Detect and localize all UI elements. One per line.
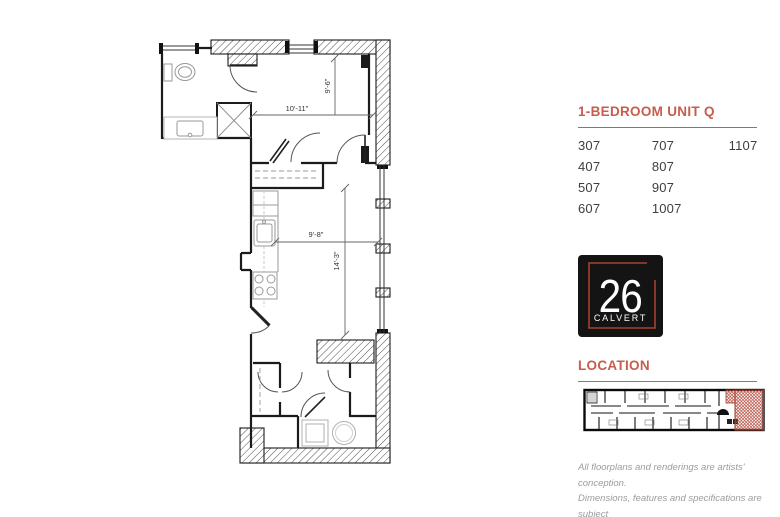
dim-bedroom-depth: 9'-6" xyxy=(323,78,332,93)
disclaimer: All floorplans and renderings are artist… xyxy=(578,460,773,517)
disclaimer-line: Dimensions, features and specifications … xyxy=(578,491,773,517)
washer xyxy=(302,420,328,446)
unit-highlight-notch xyxy=(726,390,735,403)
unit-number: 1007 xyxy=(652,198,725,219)
unit-number: 507 xyxy=(578,177,648,198)
floorplan-drawing: 10'-11" 9'-6" 9'-8" 14'-3" xyxy=(140,20,450,500)
flyer-page: 10'-11" 9'-6" 9'-8" 14'-3" 1-BEDROOM UNI… xyxy=(0,0,780,517)
location-map xyxy=(583,387,765,433)
kitchen-sink xyxy=(254,220,275,246)
dim-bedroom-width: 10'-11" xyxy=(286,104,309,113)
dim-living-depth: 14'-3" xyxy=(332,251,341,270)
disclaimer-line: All floorplans and renderings are artist… xyxy=(578,460,773,491)
logo-name: CALVERT xyxy=(594,313,647,323)
unit-row: 307 707 1107 xyxy=(578,135,757,156)
fixtures xyxy=(164,64,356,447)
dryer xyxy=(333,422,356,445)
unit-number-list: 307 707 1107 407 807 507 907 607 1007 xyxy=(578,135,757,219)
stove xyxy=(253,272,277,299)
building-washer-dryer xyxy=(727,419,732,424)
dim-living-width: 9'-8" xyxy=(309,230,324,239)
linen-closet-x xyxy=(217,103,251,138)
unit-number: 1107 xyxy=(729,135,758,156)
brand-logo: 26 CALVERT xyxy=(578,255,663,337)
unit-number: 907 xyxy=(652,177,725,198)
unit-title: 1-BEDROOM UNIT Q xyxy=(578,104,757,128)
vanity-sink xyxy=(164,117,217,139)
unit-number: 307 xyxy=(578,135,648,156)
unit-number: 707 xyxy=(652,135,725,156)
unit-row: 507 907 xyxy=(578,177,757,198)
unit-row: 407 807 xyxy=(578,156,757,177)
toilet xyxy=(164,64,195,82)
interior-walls xyxy=(162,48,376,448)
unit-row: 607 1007 xyxy=(578,198,757,219)
unit-number: 607 xyxy=(578,198,648,219)
location-title: LOCATION xyxy=(578,358,757,382)
unit-number: 807 xyxy=(652,156,725,177)
refrigerator xyxy=(253,191,278,216)
unit-number: 407 xyxy=(578,156,648,177)
unit-highlight xyxy=(735,390,764,430)
